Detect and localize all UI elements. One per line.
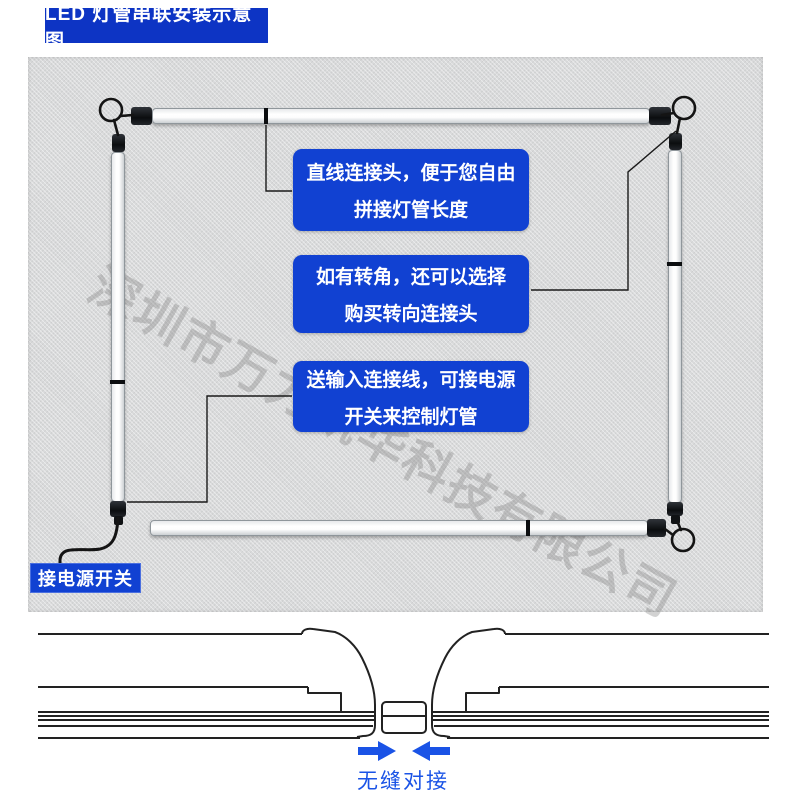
leader-line-callout-3 bbox=[127, 396, 292, 502]
arrow-right-icon bbox=[358, 741, 396, 761]
leader-line-callout-2 bbox=[531, 131, 676, 290]
cable-loop-top-right-icon bbox=[662, 97, 695, 133]
callout-line: 开关来控制灯管 bbox=[344, 402, 477, 429]
leader-line-callout-1 bbox=[266, 125, 292, 191]
callout-line: 直线连接头，便于您自由 bbox=[306, 158, 515, 185]
callout-line: 拼接灯管长度 bbox=[354, 195, 468, 222]
tube-profile-left bbox=[38, 629, 375, 738]
cable-loop-top-left-icon bbox=[100, 99, 133, 135]
tube-profile-right bbox=[432, 629, 769, 738]
arrow-left-icon bbox=[412, 741, 450, 761]
callout-line: 购买转向连接头 bbox=[344, 299, 477, 326]
seamless-joint-caption: 无缝对接 bbox=[343, 765, 463, 795]
joint-connector bbox=[382, 702, 426, 733]
callout-line: 如有转角，还可以选择 bbox=[316, 262, 506, 289]
callout-input-cable: 送输入连接线，可接电源 开关来控制灯管 bbox=[293, 361, 529, 432]
power-switch-label: 接电源开关 bbox=[30, 563, 141, 593]
power-cable bbox=[60, 518, 118, 564]
callout-straight-connector: 直线连接头，便于您自由 拼接灯管长度 bbox=[293, 149, 529, 231]
product-diagram-page: LED 灯管串联安装示意图 深圳市万力凯华科技有限公司 bbox=[0, 0, 790, 805]
callout-corner-connector: 如有转角，还可以选择 购买转向连接头 bbox=[293, 255, 529, 333]
cable-loop-bottom-right-icon bbox=[665, 523, 694, 551]
callout-line: 送输入连接线，可接电源 bbox=[306, 365, 515, 392]
